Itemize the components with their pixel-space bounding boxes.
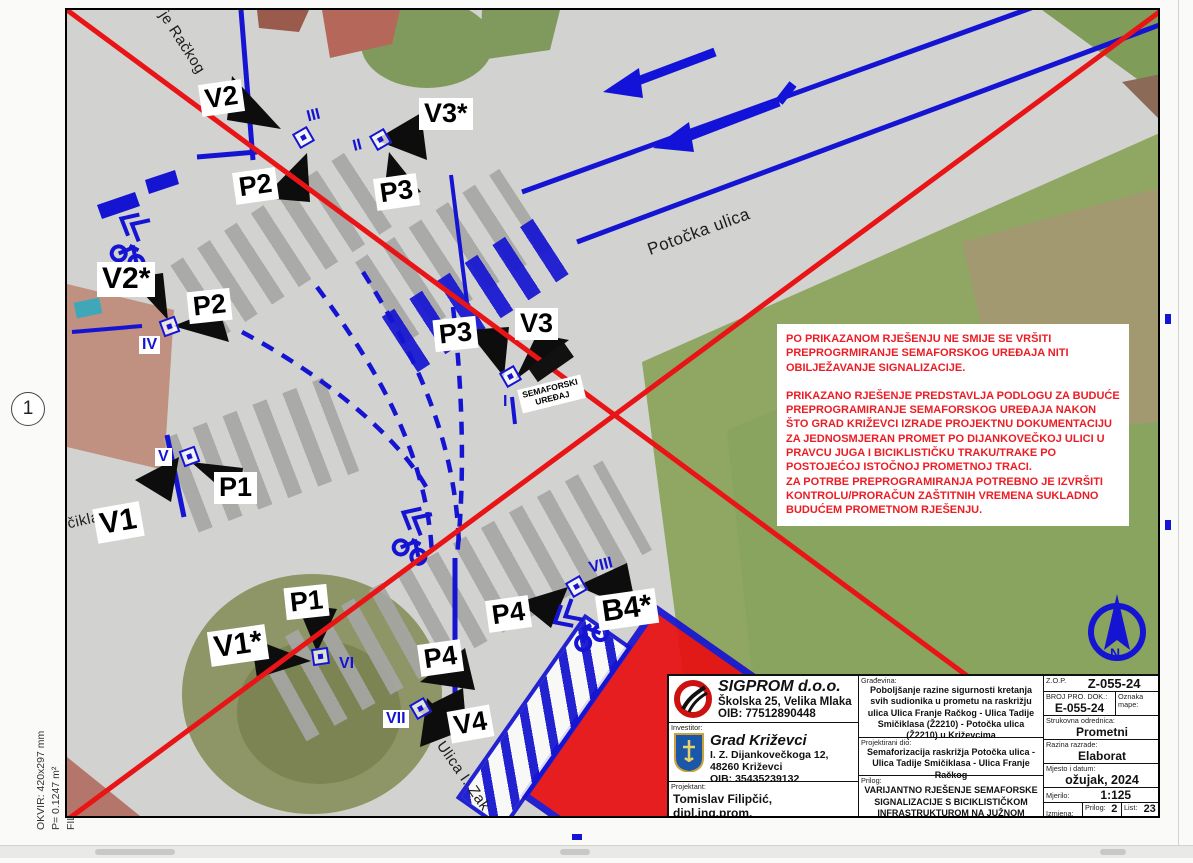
scrollbar-track[interactable] xyxy=(0,845,1193,858)
mjerilo-value: 1:125 xyxy=(1072,788,1160,802)
oznaka-label: Oznaka mape: xyxy=(1116,692,1160,709)
roman-tag-v: V xyxy=(155,448,172,466)
roman-tag-vi: VI xyxy=(339,656,354,672)
fold-mark-right-1 xyxy=(1165,314,1171,324)
investor-address1: I. Z. Dijankovečkoga 12, xyxy=(710,749,828,761)
warning-note: PO PRIKAZANOM RJEŠENJU NE SMIJE SE VRŠIT… xyxy=(777,324,1129,526)
roman-tag-iv: IV xyxy=(139,336,160,354)
roman-tag-i: I xyxy=(503,394,507,410)
north-compass-icon: N xyxy=(1091,594,1143,661)
fold-mark-right-2 xyxy=(1165,520,1171,530)
investor-label: Investitor: xyxy=(669,723,858,732)
broj-value: E-055-24 xyxy=(1044,701,1115,715)
proj-dio-label: Projektirani dio: xyxy=(859,738,1043,747)
prilog-num-label: Prilog: xyxy=(1083,803,1108,818)
company-name: SIGPROM d.o.o. xyxy=(718,678,852,696)
signal-label-p1: P1 xyxy=(214,472,257,504)
razina-label: Razina razrade: xyxy=(1044,740,1160,749)
gradevina-text: Poboljšanje razine sigurnosti kretanja s… xyxy=(859,685,1043,741)
signal-label-p2: P2 xyxy=(232,167,279,204)
signal-label-p4: P4 xyxy=(485,595,532,632)
warning-paragraph-3: ZA POTRBE PREPROGRAMIRANJA POTREBNO JE I… xyxy=(786,475,1120,518)
blue-lane-blocks xyxy=(97,170,179,219)
investor-name: Grad Križevci xyxy=(710,732,828,749)
designer-label: Projektant: xyxy=(669,782,858,791)
broj-label: BROJ PRO. DOK.: xyxy=(1044,692,1115,701)
page-edge-line xyxy=(1178,0,1179,845)
izmjena-label: Izmjena: xyxy=(1044,808,1076,818)
signal-label-v3b: V3 xyxy=(515,308,558,340)
gradevina-label: Građevina: xyxy=(859,676,1043,685)
fold-mark-bottom xyxy=(572,834,582,840)
roman-tag-vii: VII xyxy=(383,710,409,728)
title-block: SIGPROM d.o.o. Školska 25, Velika Mlaka … xyxy=(667,674,1160,818)
sheet-number-badge: 1 xyxy=(11,392,45,426)
sigprom-logo xyxy=(673,679,713,719)
signal-label-v2: V2 xyxy=(198,79,245,116)
designer-name: Tomislav Filipčić, dipl.ing.prom. xyxy=(669,791,858,818)
mjesto-value: ožujak, 2024 xyxy=(1044,773,1160,787)
razina-value: Elaborat xyxy=(1044,749,1160,763)
prilog-num-value: 2 xyxy=(1108,803,1121,818)
zop-value: Z-055-24 xyxy=(1068,676,1160,691)
list-num-value: 23 xyxy=(1139,803,1160,818)
signal-label-v3s: V3* xyxy=(419,98,473,130)
company-oib: OIB: 77512890448 xyxy=(718,708,852,720)
signal-label-p4b: P4 xyxy=(417,639,464,676)
warning-paragraph-2: PRIKAZANO RJEŠENJE PREDSTAVLJA PODLOGU Z… xyxy=(786,389,1120,475)
signal-label-v2s: V2* xyxy=(97,262,155,297)
signal-label-p1b: P1 xyxy=(283,584,329,620)
struk-value: Prometni xyxy=(1044,725,1160,739)
warning-paragraph-1: PO PRIKAZANOM RJEŠENJU NE SMIJE SE VRŠIT… xyxy=(786,332,1120,375)
margin-okvir: OKVIR: 420x297 mm xyxy=(34,514,49,830)
signal-label-p3: P3 xyxy=(373,173,420,210)
signal-symbol-vi xyxy=(311,647,330,666)
svg-text:N: N xyxy=(1110,645,1120,661)
drawing-sheet: N je Račkog Potočka ulica čiklasa Ulica … xyxy=(65,8,1160,818)
company-address: Školska 25, Velika Mlaka xyxy=(718,696,852,708)
scrollbar-segment-2[interactable] xyxy=(560,849,590,855)
signal-label-p2b: P2 xyxy=(186,288,232,324)
margin-area: P= 0.1247 m² xyxy=(49,514,64,830)
investor-address2: 48260 Križevci xyxy=(710,761,828,773)
prilog-text: VARIJANTNO RJEŠENJE SEMAFORSKE SIGNALIZA… xyxy=(859,785,1043,818)
mjesto-label: Mjesto i datum: xyxy=(1044,764,1160,773)
signal-label-p3b: P3 xyxy=(432,316,478,352)
mjerilo-label: Mjerilo: xyxy=(1044,791,1072,800)
scrollbar-segment-3[interactable] xyxy=(1100,849,1126,855)
prilog-label: Prilog: xyxy=(859,776,1043,785)
list-label: List: xyxy=(1122,803,1139,818)
zop-label: Z.O.P. xyxy=(1044,676,1068,691)
blue-guide-dashes xyxy=(242,272,462,555)
krizevci-coat-of-arms xyxy=(673,732,705,772)
bike-sharrow-icon-center xyxy=(385,502,445,566)
struk-label: Strukovna odrednica: xyxy=(1044,716,1160,725)
scrollbar-thumb[interactable] xyxy=(95,849,175,855)
